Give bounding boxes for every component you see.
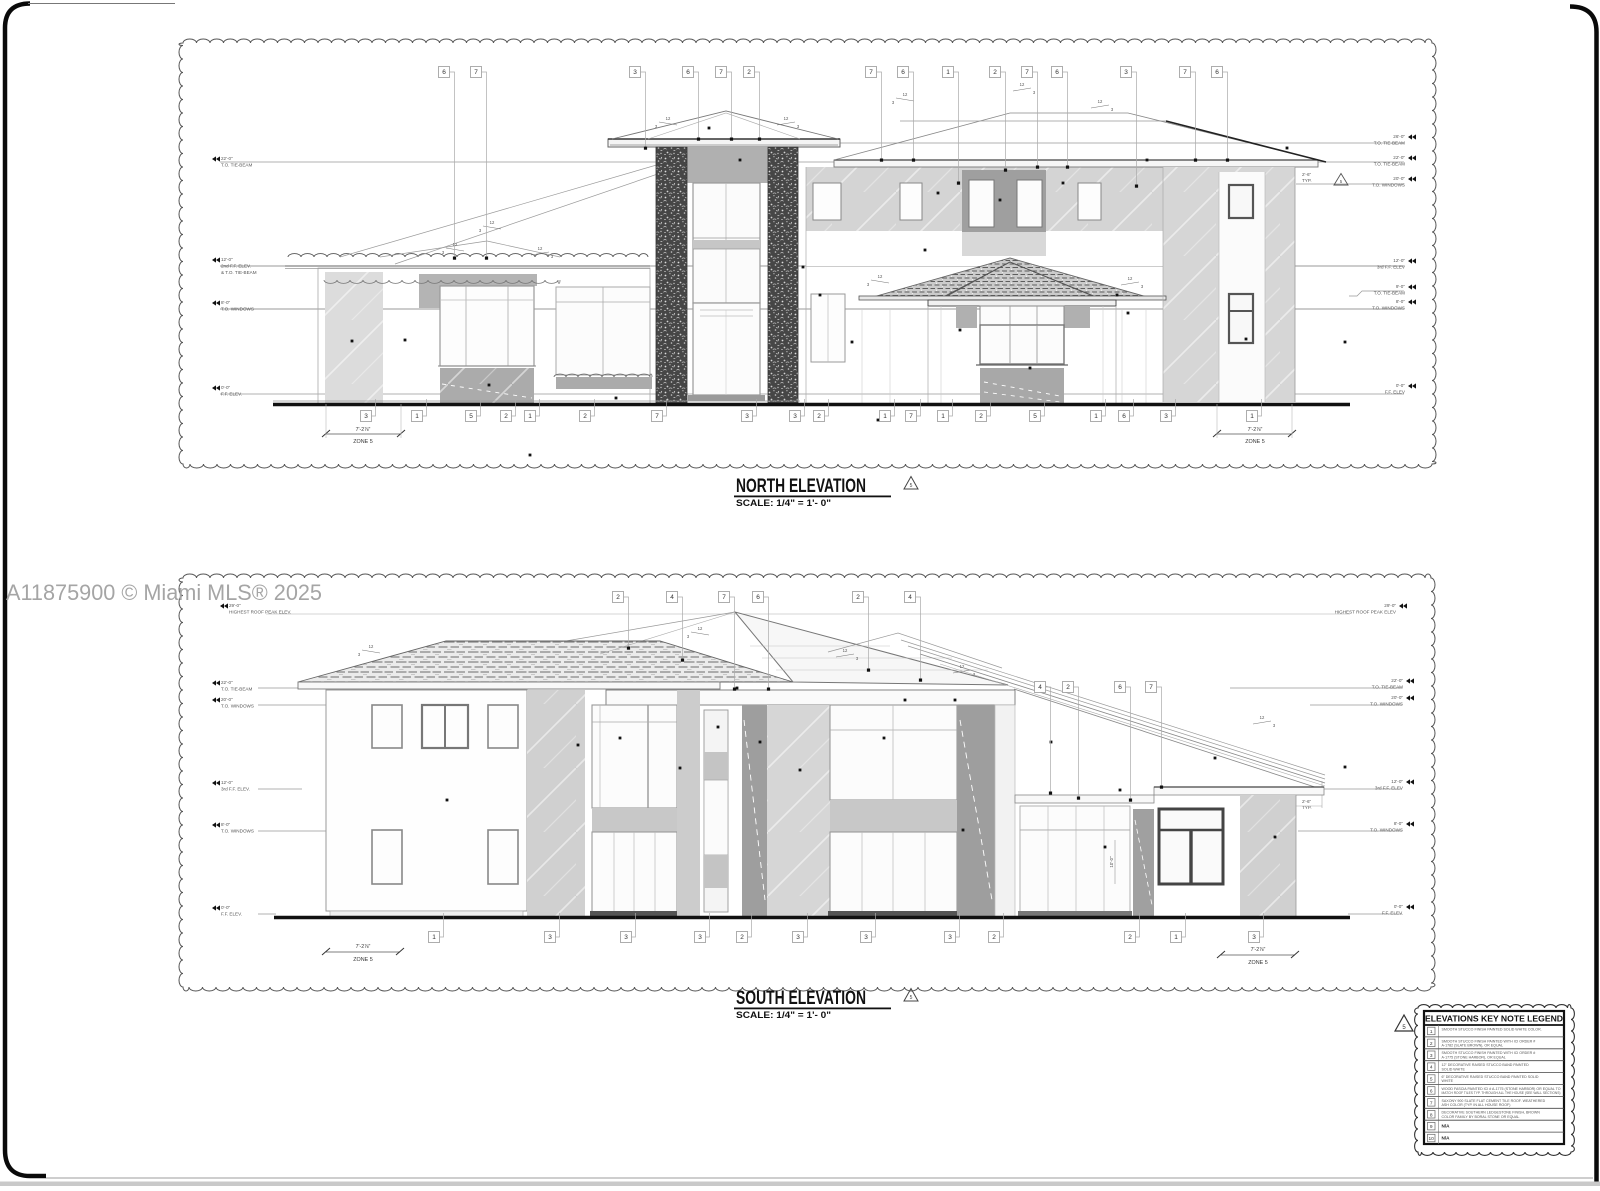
svg-text:2: 2	[817, 413, 821, 420]
svg-text:ELEVATIONS KEY NOTE LEGEND: ELEVATIONS KEY NOTE LEGEND	[1425, 1014, 1563, 1024]
svg-text:2: 2	[616, 594, 620, 601]
svg-text:SOUTH ELEVATION: SOUTH ELEVATION	[736, 987, 866, 1009]
svg-text:12: 12	[666, 116, 671, 121]
svg-text:1: 1	[1250, 413, 1254, 420]
svg-text:3: 3	[364, 413, 368, 420]
svg-text:12: 12	[843, 648, 848, 653]
svg-text:ASH COLOR (TYP. IN ALL HOUSE R: ASH COLOR (TYP. IN ALL HOUSE ROOF)	[1442, 1103, 1511, 1107]
svg-text:6: 6	[1215, 69, 1219, 76]
svg-text:0'-0": 0'-0"	[221, 385, 231, 390]
svg-text:T.O. TIE-BEAM: T.O. TIE-BEAM	[221, 686, 252, 691]
svg-text:4: 4	[670, 594, 674, 601]
svg-text:0'-0": 0'-0"	[1396, 383, 1406, 388]
svg-text:SCALE: 1/4" = 1'- 0": SCALE: 1/4" = 1'- 0"	[736, 1010, 831, 1020]
svg-text:6: 6	[756, 594, 760, 601]
svg-text:2'-6": 2'-6"	[1302, 799, 1312, 804]
svg-text:1: 1	[941, 413, 945, 420]
svg-text:12: 12	[490, 220, 495, 225]
svg-text:8'-0": 8'-0"	[221, 822, 231, 827]
svg-text:F.F. ELEV.: F.F. ELEV.	[221, 911, 242, 916]
svg-text:HIGHEST ROOF PEAK ELEV: HIGHEST ROOF PEAK ELEV	[1335, 609, 1397, 614]
svg-text:HIGHEST ROOF PEAK ELEV.: HIGHEST ROOF PEAK ELEV.	[229, 609, 291, 614]
svg-text:6: 6	[1055, 69, 1059, 76]
svg-text:2: 2	[979, 413, 983, 420]
svg-text:5: 5	[910, 483, 913, 489]
svg-text:0'-0": 0'-0"	[221, 905, 231, 910]
svg-text:7'-2⅞": 7'-2⅞"	[1251, 947, 1266, 953]
svg-text:9: 9	[1430, 1124, 1433, 1130]
svg-text:7'-2⅞": 7'-2⅞"	[1248, 427, 1263, 433]
svg-text:12'-0": 12'-0"	[1393, 258, 1405, 263]
svg-text:22'-0": 22'-0"	[1393, 155, 1405, 160]
svg-text:3: 3	[793, 413, 797, 420]
svg-text:T.O. TIE-BEAM: T.O. TIE-BEAM	[1374, 161, 1405, 166]
svg-text:8'-0": 8'-0"	[221, 300, 231, 305]
svg-text:7: 7	[1149, 684, 1153, 691]
svg-text:3: 3	[796, 934, 800, 941]
svg-text:SMOOTH STUCCO FINISH PAINTED S: SMOOTH STUCCO FINISH PAINTED SOLID WHITE…	[1442, 1027, 1542, 1031]
svg-text:3: 3	[548, 934, 552, 941]
svg-text:T.O. TIE-BEAM: T.O. TIE-BEAM	[221, 162, 252, 167]
svg-text:4: 4	[1430, 1065, 1433, 1071]
svg-text:T.O. WINDOWS: T.O. WINDOWS	[221, 306, 254, 311]
svg-text:N/A: N/A	[1442, 1136, 1451, 1141]
svg-text:1: 1	[528, 413, 532, 420]
svg-text:1: 1	[946, 69, 950, 76]
svg-text:2: 2	[992, 934, 996, 941]
svg-text:12: 12	[1128, 276, 1133, 281]
svg-text:5: 5	[1033, 413, 1037, 420]
svg-text:22'-0": 22'-0"	[1391, 678, 1403, 683]
svg-text:3rd F.F. ELEV.: 3rd F.F. ELEV.	[221, 786, 250, 791]
svg-text:12: 12	[369, 644, 374, 649]
svg-text:7: 7	[474, 69, 478, 76]
svg-text:F.F. ELEV.: F.F. ELEV.	[1382, 910, 1403, 915]
svg-text:A11875900 © Miami MLS® 2025: A11875900 © Miami MLS® 2025	[6, 580, 322, 605]
svg-text:3: 3	[624, 934, 628, 941]
svg-text:3: 3	[633, 69, 637, 76]
svg-text:3: 3	[1124, 69, 1128, 76]
svg-text:A-1782 (SLATE BROWN), OR EQUAL: A-1782 (SLATE BROWN), OR EQUAL	[1442, 1044, 1503, 1048]
svg-text:1: 1	[432, 934, 436, 941]
svg-text:SOLID WHITE: SOLID WHITE	[1442, 1067, 1466, 1071]
svg-text:22'-0": 22'-0"	[221, 680, 233, 685]
svg-text:10'-0": 10'-0"	[1109, 856, 1114, 868]
svg-text:12: 12	[903, 92, 908, 97]
svg-text:3: 3	[1430, 1053, 1433, 1059]
svg-text:1: 1	[883, 413, 887, 420]
svg-text:3: 3	[1252, 934, 1256, 941]
svg-text:2: 2	[747, 69, 751, 76]
svg-text:T.O. WINDOWS: T.O. WINDOWS	[221, 828, 254, 833]
svg-text:10: 10	[1429, 1136, 1435, 1142]
svg-text:7: 7	[1183, 69, 1187, 76]
svg-text:F.F. ELEV: F.F. ELEV	[1385, 389, 1406, 394]
svg-text:12: 12	[1098, 99, 1103, 104]
svg-text:T.O. WINDOWS: T.O. WINDOWS	[1372, 182, 1405, 187]
svg-text:3rd F.F. ELEV: 3rd F.F. ELEV	[1375, 785, 1404, 790]
svg-text:ZONE 5: ZONE 5	[1248, 960, 1267, 966]
svg-text:3rd F.F. ELEV: 3rd F.F. ELEV	[1377, 264, 1406, 269]
svg-text:8'-0": 8'-0"	[1396, 299, 1406, 304]
svg-text:8'-0": 8'-0"	[1394, 821, 1404, 826]
svg-text:T.O. WINDOWS: T.O. WINDOWS	[1370, 701, 1403, 706]
svg-text:F.F. ELEV.: F.F. ELEV.	[221, 391, 242, 396]
svg-text:2: 2	[856, 594, 860, 601]
svg-text:7: 7	[722, 594, 726, 601]
svg-text:12: 12	[538, 246, 543, 251]
svg-text:7: 7	[1025, 69, 1029, 76]
svg-text:7'-2⅞": 7'-2⅞"	[356, 944, 371, 950]
svg-text:T.O. TIE-BEAM: T.O. TIE-BEAM	[1372, 684, 1403, 689]
svg-text:9'-0": 9'-0"	[1396, 284, 1406, 289]
svg-text:12: 12	[698, 626, 703, 631]
svg-text:3: 3	[1164, 413, 1168, 420]
svg-text:T.O. TIE-BEAM: T.O. TIE-BEAM	[1374, 290, 1405, 295]
svg-text:1: 1	[1094, 413, 1098, 420]
svg-text:2: 2	[993, 69, 997, 76]
svg-text:WHITE: WHITE	[1442, 1079, 1454, 1083]
svg-text:12'-0": 12'-0"	[1391, 779, 1403, 784]
svg-text:ZONE 5: ZONE 5	[353, 957, 372, 963]
svg-text:T.O. WINDOWS: T.O. WINDOWS	[1370, 827, 1403, 832]
svg-text:20'-0": 20'-0"	[221, 697, 233, 702]
svg-text:2: 2	[583, 413, 587, 420]
svg-text:6: 6	[442, 69, 446, 76]
svg-text:TYP.: TYP.	[1302, 178, 1312, 183]
svg-text:6: 6	[1118, 684, 1122, 691]
svg-text:29'-0": 29'-0"	[1384, 603, 1396, 608]
svg-text:2nd F.F. ELEV.: 2nd F.F. ELEV.	[221, 263, 251, 268]
svg-text:5: 5	[910, 995, 913, 1001]
svg-text:SCALE: 1/4" = 1'- 0": SCALE: 1/4" = 1'- 0"	[736, 498, 831, 508]
svg-text:& T.O. TIE-BEAM: & T.O. TIE-BEAM	[221, 270, 257, 275]
svg-text:2'-6": 2'-6"	[1302, 172, 1312, 177]
svg-text:12: 12	[784, 116, 789, 121]
svg-text:N/A: N/A	[1442, 1124, 1451, 1129]
svg-text:2: 2	[1066, 684, 1070, 691]
svg-text:4: 4	[908, 594, 912, 601]
svg-text:3: 3	[698, 934, 702, 941]
svg-text:1: 1	[1174, 934, 1178, 941]
svg-text:6: 6	[686, 69, 690, 76]
svg-text:T.O. WINDOWS: T.O. WINDOWS	[221, 703, 254, 708]
svg-text:1: 1	[415, 413, 419, 420]
svg-text:COLOR FAMILY BY BORAL STONE OR: COLOR FAMILY BY BORAL STONE OR EQUAL	[1442, 1115, 1520, 1119]
svg-text:ZONE 5: ZONE 5	[353, 439, 372, 445]
svg-text:7: 7	[869, 69, 873, 76]
svg-text:2: 2	[1430, 1041, 1433, 1047]
svg-text:12'-0": 12'-0"	[221, 780, 233, 785]
svg-text:6" DECORATIVE RAISED STUCCO BA: 6" DECORATIVE RAISED STUCCO BAND PAINTED…	[1442, 1075, 1539, 1079]
svg-text:12: 12	[453, 242, 458, 247]
svg-text:2: 2	[740, 934, 744, 941]
svg-text:2: 2	[1128, 934, 1132, 941]
svg-text:7: 7	[655, 413, 659, 420]
svg-text:12: 12	[878, 274, 883, 279]
svg-text:MATCH ROOF TILES TYP. THROUGH: MATCH ROOF TILES TYP. THROUGH ALL THE HO…	[1442, 1091, 1561, 1095]
svg-text:NORTH ELEVATION: NORTH ELEVATION	[736, 475, 866, 497]
svg-text:3: 3	[948, 934, 952, 941]
svg-text:2: 2	[504, 413, 508, 420]
svg-text:12'-0": 12'-0"	[221, 257, 233, 262]
svg-text:6: 6	[901, 69, 905, 76]
svg-text:20'-0": 20'-0"	[1393, 176, 1405, 181]
svg-text:7: 7	[1430, 1100, 1433, 1106]
svg-text:6: 6	[1430, 1089, 1433, 1095]
svg-text:ZONE 5: ZONE 5	[1245, 439, 1264, 445]
svg-text:7: 7	[909, 413, 913, 420]
svg-text:20'-0": 20'-0"	[1391, 695, 1403, 700]
svg-text:7: 7	[719, 69, 723, 76]
svg-text:22'-0": 22'-0"	[221, 156, 233, 161]
svg-text:5: 5	[1430, 1077, 1433, 1083]
svg-text:5: 5	[469, 413, 473, 420]
svg-text:26'-0": 26'-0"	[1393, 134, 1405, 139]
svg-text:3: 3	[864, 934, 868, 941]
svg-text:4: 4	[1038, 684, 1042, 691]
svg-text:7'-2⅞": 7'-2⅞"	[356, 427, 371, 433]
svg-text:12: 12	[1020, 82, 1025, 87]
svg-text:6: 6	[1122, 413, 1126, 420]
svg-text:A-1775 (STONE HARBOR), OR EQUA: A-1775 (STONE HARBOR), OR EQUAL	[1442, 1055, 1506, 1059]
svg-text:T.O. TIE-BEAM: T.O. TIE-BEAM	[1374, 140, 1405, 145]
svg-text:3: 3	[745, 413, 749, 420]
svg-text:8: 8	[1430, 1112, 1433, 1118]
svg-text:12: 12	[1260, 715, 1265, 720]
svg-text:T.O. WINDOWS: T.O. WINDOWS	[1372, 305, 1405, 310]
svg-text:0'-0": 0'-0"	[1394, 904, 1404, 909]
svg-text:1: 1	[1430, 1029, 1433, 1035]
